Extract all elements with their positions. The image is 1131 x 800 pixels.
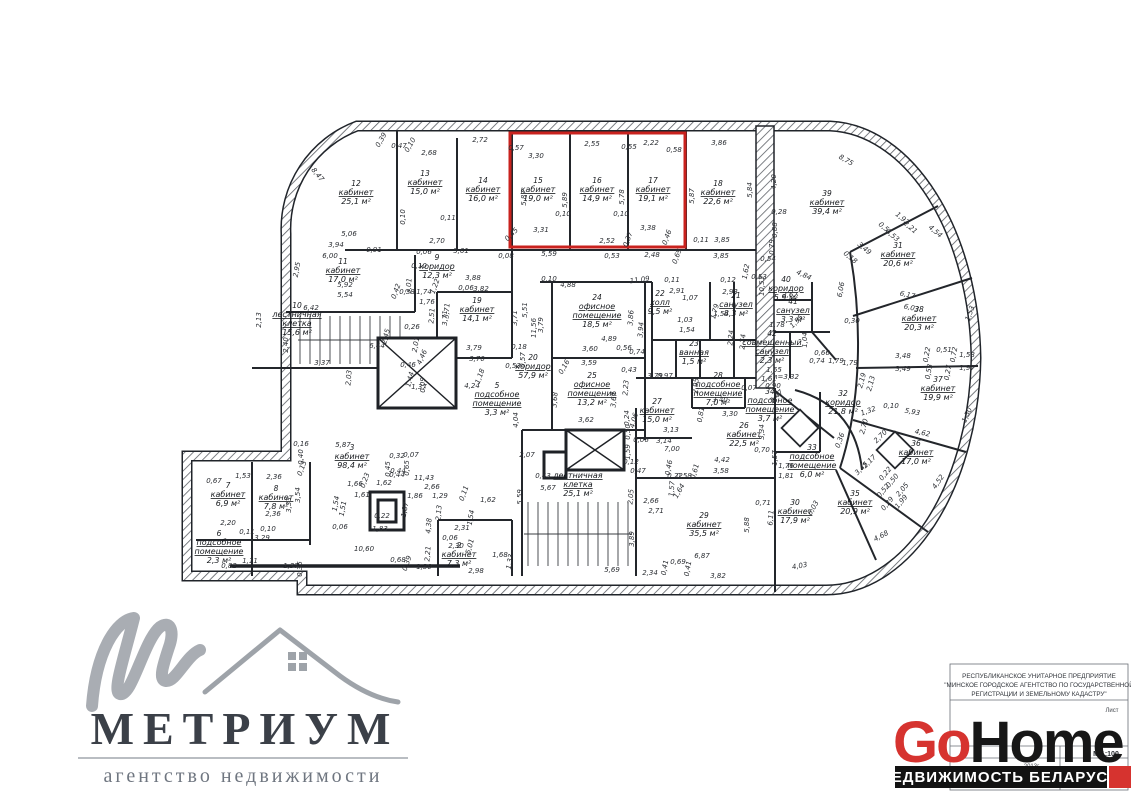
dimension-label: 4,42 <box>714 456 730 464</box>
dimension-label: 2,93 <box>722 288 738 296</box>
room-area: 57,9 м² <box>518 371 548 380</box>
dimension-label: 0,82 <box>221 562 237 570</box>
dimension-label: 1,51 <box>338 500 349 517</box>
dimension-label: 6,87 <box>694 552 710 560</box>
dimension-label: 3,94 <box>328 241 344 249</box>
room-number: 5 <box>495 381 500 390</box>
dimension-label: 0,57 <box>508 144 524 152</box>
dimension-label: 0,30 <box>844 317 860 325</box>
dimension-label: 0,43 <box>535 472 551 480</box>
room-name: помещение <box>746 405 795 414</box>
dimension-label: 3,79 <box>537 317 545 333</box>
dimension-label: 5,51 <box>521 302 529 318</box>
dimension-label: 1,54 <box>466 509 477 526</box>
dimension-label: 2,05 <box>626 488 635 505</box>
dimension-label: 0,06 <box>633 436 649 444</box>
dimension-label: 1,33 <box>505 553 516 570</box>
dimension-label: 0,10 <box>399 209 407 225</box>
room-number: 39 <box>822 189 832 198</box>
dimension-label: 0,38 <box>399 288 415 296</box>
dimension-label: 3,13 <box>663 426 679 434</box>
dimension-label: 2,21 <box>423 546 432 562</box>
dimension-label: 0,06 <box>416 248 432 256</box>
scanned-floor-plan-page: 12кабинет25,1 м²13кабинет15,0 м²14кабине… <box>0 0 1131 800</box>
dimension-label: 4,04 <box>512 412 520 428</box>
room-label: 18кабинет22,6 м² <box>701 179 736 206</box>
dimension-label: 1,86 <box>407 492 423 500</box>
dimension-label: 0,11 <box>239 528 255 536</box>
dimension-label: 0,53 <box>604 252 620 260</box>
dimension-label: 6,11 <box>766 510 775 526</box>
room-name: коридор <box>825 398 861 407</box>
room-name: кабинет <box>902 314 937 323</box>
dimension-label: 4,89 <box>601 335 617 343</box>
dimension-label: 0,11 <box>458 485 471 502</box>
dimension-label: 1,97 <box>959 364 975 372</box>
room-number: 42 <box>767 329 777 338</box>
stamp-line-3: РЕГИСТРАЦИИ И ЗЕМЕЛЬНОМУ КАДАСТРУ" <box>971 691 1106 698</box>
dimension-label: 0,46 <box>661 228 674 246</box>
dimension-label: 3,33 <box>285 497 293 513</box>
room-area: 18,5 м² <box>582 320 612 329</box>
dimension-label: 10,53 <box>758 276 766 296</box>
room-label: 29кабинет35,5 м² <box>687 511 722 538</box>
room-number: 37 <box>933 375 943 384</box>
dimension-label: 1,81 <box>778 472 794 480</box>
dimension-label: 1,29 <box>432 492 448 500</box>
dimension-label: 1,62 <box>376 479 392 487</box>
dimension-label: 5,87 <box>688 188 696 204</box>
dimension-label: 3,31 <box>533 226 549 234</box>
room-name: офисное <box>574 380 610 389</box>
dimension-label: 0,10 <box>541 275 557 283</box>
room-area: 25,1 м² <box>563 489 593 498</box>
dimension-label: 11,09 <box>629 275 650 286</box>
dimension-label: 2,23 <box>621 380 630 396</box>
dimension-label: 3,58 <box>713 467 729 475</box>
dimension-label: 0,56 <box>616 344 632 352</box>
dimension-label: 0,10 <box>411 262 427 270</box>
room-number: 19 <box>472 296 482 305</box>
dimension-label: 0,22 <box>374 512 390 520</box>
dimension-label: 3,59 <box>581 359 597 367</box>
dimension-label: 0,36 <box>834 431 847 449</box>
room-name: помещение <box>788 461 837 470</box>
dimension-label: 5,59 <box>516 489 524 505</box>
room-label: 16кабинет14,9 м² <box>580 176 615 203</box>
dimension-label: 0,10 <box>403 136 418 154</box>
dimension-label: 3,49 <box>895 365 911 373</box>
metrium-subtitle: агентство недвижимости <box>104 765 383 787</box>
dimension-label: 6,06 <box>836 281 847 298</box>
dimension-label: 2,95 <box>292 261 303 278</box>
dimension-label: 4,84 <box>795 268 813 282</box>
room-area: 19,9 м² <box>923 393 953 402</box>
dimension-label: 1,04 <box>801 332 809 348</box>
room-label: 6подсобноепомещение2,3 м² <box>195 529 244 565</box>
dimension-label: 3,37 <box>314 359 330 367</box>
dimension-label: 1,54 <box>679 326 695 334</box>
room-name: кабинет <box>838 498 873 507</box>
dimension-label: 4,68 <box>872 529 890 544</box>
dimension-label: 5,89 <box>561 192 569 208</box>
dimension-label: 2,22 <box>643 139 659 147</box>
dimension-label: 5,84 <box>746 182 754 198</box>
dimension-label: 1,30 <box>416 563 432 571</box>
dimension-label: 3,85 <box>713 252 729 260</box>
dimension-label: 1,18 <box>474 367 487 385</box>
dimension-label: 4,88 <box>560 281 576 289</box>
room-label: 42совмещенныйсанузел2,3 м² <box>742 329 801 365</box>
room-area: 39,4 м² <box>812 207 842 216</box>
room-name: санузел <box>776 306 810 315</box>
dimension-label: 8,75 <box>837 153 855 168</box>
dimension-label: 1,32 <box>860 405 878 418</box>
dimension-label: 0,09 <box>419 377 427 393</box>
dimension-label: 4,03 <box>791 561 808 572</box>
room-name: кабинет <box>899 448 934 457</box>
room-area: 21,8 м² <box>828 407 858 416</box>
dimension-label: 0,57 <box>519 352 527 368</box>
dimension-label: 0,39 <box>374 131 389 149</box>
dimension-label: 1,54 <box>713 310 729 318</box>
room-area: 3,7 м² <box>758 414 783 423</box>
room-area: 9,5 м² <box>648 307 673 316</box>
dimension-label: 2,74 <box>738 334 747 350</box>
room-number: 11 <box>338 257 348 266</box>
room-area: 25,1 м² <box>341 197 371 206</box>
room-area: 16,0 м² <box>468 194 498 203</box>
dimension-label: 2,66 <box>424 483 440 491</box>
dimension-label: 0,55 <box>621 143 637 151</box>
room-name: подсобное <box>475 390 520 399</box>
dimension-label: 3,79 <box>466 344 482 352</box>
room-name: лестничная <box>552 471 602 480</box>
dimension-label: 3,88 <box>465 274 481 282</box>
dimension-label: 0,08 <box>498 252 514 260</box>
room-number: 17 <box>648 176 658 185</box>
dimension-label: 3,79 <box>647 372 663 380</box>
dimension-label: 0,70 <box>754 446 770 454</box>
room-area: 19,1 м² <box>638 194 668 203</box>
dimension-label: 2,67 <box>782 291 798 299</box>
room-name: кабинет <box>701 188 736 197</box>
dimension-label: 2,34 <box>642 569 658 577</box>
dimension-label: 0,07 <box>403 451 419 459</box>
dimension-label: 2,48 <box>644 251 660 259</box>
dimension-label: 0,10 <box>883 402 899 410</box>
dimension-label: 0,27 <box>943 364 954 381</box>
dimension-label: 4,54 <box>927 223 944 239</box>
room-area: 20,3 м² <box>904 323 934 332</box>
room-name: помещение <box>568 389 617 398</box>
dimension-label: 1,11 <box>242 557 258 565</box>
dimension-label: 10,60 <box>354 545 375 553</box>
dimension-label: 4,38 <box>424 517 433 534</box>
room-name: кабинет <box>460 305 495 314</box>
room-number: 36 <box>911 439 921 448</box>
stamp-line-2: "МИНСКОЕ ГОРОДСКОЕ АГЕНТСТВО ПО ГОСУДАРС… <box>944 680 1131 689</box>
dimension-label: 2,21 <box>902 219 919 235</box>
room-number: 24 <box>592 293 602 302</box>
gohome-home: Home <box>970 710 1124 775</box>
dimension-label: 2,98 <box>468 567 484 575</box>
room-label: 11кабинет17,0 м² <box>326 257 361 284</box>
dimension-label: 5,69 <box>604 566 620 574</box>
dimension-label: 6,00 <box>322 252 338 260</box>
room-label: 33подсобноепомещение6,0 м² <box>788 443 837 479</box>
dimension-label: 3,40 <box>712 396 728 404</box>
dimension-label: 1,79 <box>842 359 858 367</box>
dimension-label: 3,82 <box>473 285 489 293</box>
dimension-label: 0,10 <box>260 525 276 533</box>
dimension-label: 2,55 <box>584 140 600 148</box>
dimension-label: 0,07 <box>741 384 757 392</box>
room-name: клетка <box>282 319 311 328</box>
room-name: кабинет <box>211 490 246 499</box>
dimension-label: 3,30 <box>722 410 738 418</box>
room-area: 13,2 м² <box>577 398 607 407</box>
room-area: 17,0 м² <box>901 457 931 466</box>
dimension-label: 0,44 <box>389 471 405 479</box>
dimension-label: 5,88 <box>743 517 751 533</box>
dimension-label: 3,86 <box>626 309 635 326</box>
room-name: кабинет <box>466 185 501 194</box>
dimension-label: 0,10 <box>613 210 629 218</box>
dimension-label: 1,07 <box>682 294 698 302</box>
dimension-label: 3,68 <box>550 391 559 408</box>
dimension-label: 0,58 <box>666 146 682 154</box>
room-area: 17,9 м² <box>780 516 810 525</box>
dimension-label: 0,71 <box>755 499 771 507</box>
dimension-label: h=3,32 <box>773 373 799 381</box>
dimension-label: 3,30 <box>528 152 544 160</box>
room-name: кабинет <box>640 406 675 415</box>
metrium-logo: МЕТРИУМ агентство недвижимости <box>78 618 408 787</box>
room-label: 12кабинет25,1 м² <box>339 179 374 206</box>
room-number: 14 <box>478 176 488 185</box>
dimension-label: 0,91 <box>366 246 382 254</box>
room-name: подсобное <box>696 380 741 389</box>
room-name: санузел <box>719 300 753 309</box>
dimension-label: 0,11 <box>440 214 456 222</box>
dimension-label: 1,74 <box>416 288 432 296</box>
dimension-label: 3,86 <box>711 139 727 147</box>
dimension-label: 2,07 <box>519 451 535 459</box>
room-number: 29 <box>699 511 709 520</box>
dimension-label: 1,79 <box>828 357 844 365</box>
room-name: кабинет <box>687 520 722 529</box>
dimension-label: 3,94 <box>636 322 645 338</box>
stamp-line-1: РЕСПУБЛИКАНСКОЕ УНИТАРНОЕ ПРЕДПРИЯТИЕ <box>962 673 1116 680</box>
room-name: помещение <box>473 399 522 408</box>
room-label: 7кабинет6,9 м² <box>211 481 246 508</box>
room-label: 31кабинет20,6 м² <box>881 241 916 268</box>
dimension-label: 5,67 <box>540 484 556 492</box>
room-number: 33 <box>807 443 817 452</box>
dimension-label: 2,95 <box>691 377 700 394</box>
dimension-label: 2,51 <box>427 308 436 324</box>
dimension-label: 0,10 <box>555 210 571 218</box>
dimension-label: 2,70 <box>429 237 445 245</box>
dimension-label: 0,22 <box>922 346 933 363</box>
dimension-label: 1,83 <box>372 525 388 533</box>
dimension-label: 2,71 <box>648 507 664 515</box>
room-name: холл <box>649 298 670 307</box>
dimension-label: 2,66 <box>643 497 659 505</box>
dimension-label: 5,61 <box>453 247 469 255</box>
dimension-label: 3,38 <box>640 224 656 232</box>
room-name: кабинет <box>326 266 361 275</box>
room-area: 98,4 м² <box>337 461 367 470</box>
dimension-label: 3,49 <box>856 240 874 256</box>
dimension-label: 3,34 <box>758 424 766 440</box>
room-area: 15,0 м² <box>410 187 440 196</box>
dimension-label: 0,67 <box>206 477 222 485</box>
dimension-label: 2,13 <box>434 505 443 521</box>
room-area: 20,6 м² <box>883 259 913 268</box>
room-number: 27 <box>652 397 662 406</box>
dimension-label: 0,41 <box>660 559 671 576</box>
dimension-label: 5,59 <box>541 250 557 258</box>
dimension-label: 1,53 <box>235 472 251 480</box>
room-label: 24офисноепомещение18,5 м² <box>573 293 622 329</box>
room-number: 13 <box>420 169 430 178</box>
dimension-label: 2,36 <box>265 510 281 518</box>
dimension-label: 2,30 <box>448 542 464 550</box>
dimension-label: 0,16 <box>557 358 572 376</box>
dimension-label: 4,20 <box>770 174 778 190</box>
room-number: 8 <box>274 484 279 493</box>
room-label: 34подсобноепомещение3,7 м² <box>746 387 795 423</box>
room-name: помещение <box>195 547 244 556</box>
room-number: 28 <box>713 371 723 380</box>
dimension-label: 3,48 <box>895 352 911 360</box>
room-number: 18 <box>713 179 723 188</box>
dimension-label: 3,89 <box>628 531 636 547</box>
gohome-logo: GoHome НЕДВИЖИМОСТЬ БЕЛАРУСИ <box>880 710 1131 788</box>
room-name: совмещенный <box>742 338 801 347</box>
room-number: 7 <box>226 481 231 490</box>
dimension-label: 0,50 <box>624 424 632 440</box>
room-area: 22,6 м² <box>703 197 733 206</box>
dimension-label: 3,70 <box>469 355 485 363</box>
room-area: 15,6 м² <box>282 328 312 337</box>
dimension-label: 3,54 <box>294 487 302 503</box>
room-number: 20 <box>528 353 538 362</box>
dimension-label: 8,47 <box>309 166 325 184</box>
dimension-label: 2,72 <box>472 136 488 144</box>
room-number: 30 <box>790 498 800 507</box>
room-name: офисное <box>579 302 615 311</box>
room-number: 6 <box>217 529 222 538</box>
room-name: клетка <box>563 480 592 489</box>
dimension-label: 0,37 <box>622 230 635 248</box>
gohome-go: Go <box>893 710 970 775</box>
room-number: 32 <box>838 389 848 398</box>
room-number: 40 <box>781 275 791 284</box>
dimension-label: 1,87 <box>400 501 411 518</box>
dimension-label: 2,70 <box>858 417 870 435</box>
dimension-label: 0,06 <box>458 284 474 292</box>
dimension-label: 6,42 <box>303 304 319 312</box>
gohome-wordmark: GoHome <box>893 710 1123 775</box>
room-number: 23 <box>689 339 699 348</box>
room-name: кабинет <box>339 188 374 197</box>
dimension-label: 0,06 <box>442 534 458 542</box>
dimension-label: 2,36 <box>266 473 282 481</box>
room-number: 25 <box>587 371 597 380</box>
dimension-label: 2,03 <box>344 370 353 386</box>
dimension-label: 5,93 <box>904 407 921 418</box>
dimension-label: 2,20 <box>220 519 236 527</box>
gohome-tagline: НЕДВИЖИМОСТЬ БЕЛАРУСИ <box>880 769 1120 786</box>
dimension-label: 3,29 <box>254 534 270 542</box>
room-area: 35,5 м² <box>689 529 719 538</box>
room-area: 6,9 м² <box>216 499 241 508</box>
dimension-label: 1,76 <box>778 462 794 470</box>
room-area: 12,3 м² <box>422 271 452 280</box>
room-name: санузел <box>755 347 789 356</box>
dimension-label: 0,79 <box>768 239 776 255</box>
dimension-label: 0,28 <box>771 208 787 216</box>
floor-plan-drawing: 12кабинет25,1 м²13кабинет15,0 м²14кабине… <box>0 0 1131 800</box>
room-number: 22 <box>655 289 665 298</box>
dimension-label: 11,43 <box>414 474 434 482</box>
dimension-label: 1,03 <box>677 316 693 324</box>
room-area: 14,9 м² <box>582 194 612 203</box>
dimension-label: 0,47 <box>630 467 646 475</box>
room-label: 14кабинет16,0 м² <box>466 176 501 203</box>
room-number: 16 <box>592 176 602 185</box>
dimension-label: 0,74 <box>809 357 825 365</box>
dimension-label: 3,82 <box>710 572 726 580</box>
dimension-label: 2,40 <box>282 337 290 353</box>
dimension-label: 3,85 <box>714 236 730 244</box>
room-number: 26 <box>739 421 749 430</box>
dimension-label: 3,71 <box>442 303 451 319</box>
dimension-label: 2,68 <box>421 149 437 157</box>
dimension-label: 0,41 <box>683 560 694 577</box>
dimension-label: 1,62 <box>480 496 496 504</box>
dimension-label: 5,87 <box>335 441 351 449</box>
dimension-label: 1,61 <box>354 491 370 499</box>
room-number: 35 <box>850 489 860 498</box>
dimension-label: 3,67 <box>609 391 618 408</box>
dimension-label: 0,54 <box>760 255 776 263</box>
dimension-label: 0,35 <box>296 561 304 577</box>
metrium-swoosh-icon <box>92 618 200 706</box>
dimension-label: 1,62 <box>741 263 752 280</box>
dimension-label: 1,58 <box>959 351 975 359</box>
room-name: кабинет <box>881 250 916 259</box>
room-area: 20,9 м² <box>840 507 870 516</box>
dimension-label: 3,71 <box>511 310 519 326</box>
dimension-label: 5,92 <box>337 281 353 289</box>
dimension-label: 0,18 <box>842 249 860 265</box>
dimension-label: 0,12 <box>720 276 736 284</box>
dimension-label: 1,78 <box>769 321 785 329</box>
room-name: подсобное <box>790 452 835 461</box>
dimension-label: 6,17 <box>899 290 916 301</box>
room-label: 26кабинет22,5 м² <box>727 421 762 448</box>
dimension-label: 0,26 <box>404 323 420 331</box>
dimension-label: 0,43 <box>621 366 637 374</box>
room-area: 1,5 м² <box>682 357 707 366</box>
gohome-red-square <box>1109 766 1131 788</box>
room-number: 9 <box>435 253 440 262</box>
room-label: 35кабинет20,9 м² <box>838 489 873 516</box>
